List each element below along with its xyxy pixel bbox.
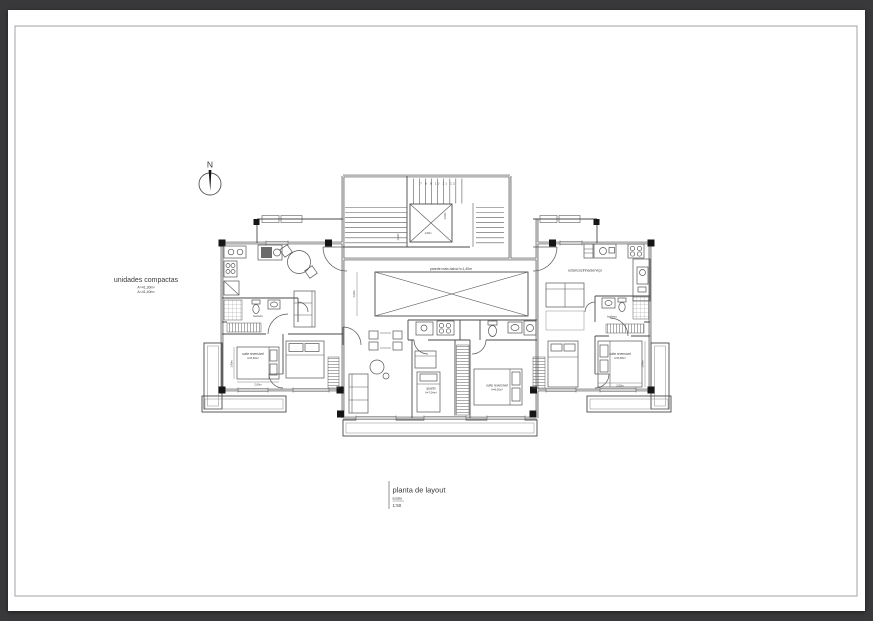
quarto-room: quarto A=7,04m² — [415, 351, 440, 412]
left-dim-h: 1,40m — [230, 360, 234, 367]
wardrobe-hatch — [606, 324, 644, 333]
right-bathroom: banheiro — [602, 297, 649, 319]
sink-icon — [268, 300, 280, 309]
toilet-icon — [488, 321, 497, 325]
right-bath-label: banheiro — [607, 316, 617, 319]
left-kitchen — [224, 245, 282, 295]
side-note-title: unidades compactas — [114, 277, 179, 284]
suite-mid-area: A=8,05m² — [491, 388, 503, 392]
side-note-area1: A=41,30m² — [137, 286, 155, 290]
drawing-canvas: N unidades compactas A=41,30m² A=41,40m² — [0, 0, 873, 621]
left-suite-label: suíte reversível — [242, 352, 264, 356]
right-unit: estar/cozinha/serviço — [533, 244, 650, 388]
void-dim: 1,20m — [352, 290, 356, 297]
stair-core: 7 8 9 10 11 12 1,60m 1,50m 1,00m — [345, 179, 504, 248]
suite-mid-label: suíte reversível — [486, 384, 508, 388]
window — [424, 416, 466, 421]
right-sofa — [546, 283, 584, 330]
center-sofa — [349, 374, 368, 413]
scale-value: 1:50 — [393, 503, 402, 508]
window — [487, 416, 525, 421]
toilet-icon — [618, 298, 626, 302]
right-dim-h: 1,40m — [641, 360, 645, 367]
side-note-area2: A=41,40m² — [137, 290, 155, 294]
stair-step-numbers: 7 8 9 10 11 12 — [420, 182, 456, 186]
window — [560, 241, 582, 246]
toilet-icon — [252, 300, 260, 304]
left-sofa — [294, 291, 315, 327]
center-unit: parede mais baixa h=1,40m — [349, 267, 536, 415]
quarto-area: A=7,04m² — [425, 391, 437, 395]
wardrobe-hatch — [227, 323, 261, 332]
scale-label: escala — [393, 497, 402, 501]
window — [293, 388, 329, 393]
wardrobe-hatch — [533, 357, 545, 388]
sink-icon — [602, 298, 615, 308]
left-suite-area: A=8,36m² — [247, 356, 259, 360]
left-bathroom: banheiro — [224, 300, 280, 320]
low-wall-label: parede mais baixa h=1,40m — [430, 267, 472, 271]
center-balcony — [343, 420, 537, 436]
round-table-icon — [288, 251, 311, 274]
left-dining — [280, 245, 318, 279]
right-kitchen — [584, 244, 650, 301]
shower-icon — [224, 300, 242, 320]
drawing-title: planta de layout — [393, 486, 447, 495]
left-suite: suíte reversível A=8,36m² — [237, 341, 324, 379]
stove-icon — [224, 261, 237, 277]
side-note: unidades compactas A=41,30m² A=41,40m² — [114, 277, 179, 294]
north-arrow-needle — [209, 170, 212, 191]
shaft-height-dim: 1,50m — [444, 213, 447, 220]
title-block: planta de layout escala 1:50 — [389, 481, 446, 509]
wardrobe-hatch — [328, 357, 339, 388]
left-bottom-balcony — [202, 396, 286, 412]
left-unit: banheiro suíte reversível A=8,36m² 1,40m… — [224, 245, 339, 388]
right-bottom-balcony — [587, 396, 671, 412]
exterior-walls — [222, 176, 650, 418]
stool-icon — [383, 373, 389, 379]
window — [238, 388, 268, 393]
center-kitchen — [416, 321, 536, 337]
dining-set — [369, 331, 402, 350]
bed-icon — [598, 341, 642, 387]
left-dim-w: 2,60m — [254, 383, 261, 387]
right-dim-w: 2,60m — [616, 383, 623, 387]
north-arrow: N — [199, 160, 221, 196]
left-bath-label: banheiro — [253, 315, 263, 318]
sink-icon — [594, 244, 616, 258]
sink-icon — [508, 322, 522, 333]
rug — [546, 311, 584, 330]
right-suite-label: suíte reversível — [609, 352, 631, 356]
bed-icon — [548, 341, 578, 387]
estar-label: estar/cozinha/serviço — [568, 269, 602, 273]
sheet-border — [15, 26, 857, 596]
shaft-width-dim: 1,60m — [425, 232, 432, 235]
washer-icon — [524, 321, 536, 335]
wardrobe-hatch — [457, 345, 470, 415]
round-table-icon — [370, 360, 384, 374]
window — [600, 388, 636, 393]
stove-icon — [628, 244, 644, 258]
center-suite: suíte reversível A=8,05m² — [474, 369, 522, 405]
north-label: N — [207, 160, 213, 170]
quarto-label: quarto — [426, 387, 435, 391]
window — [546, 388, 576, 393]
floor-plan-drawing: N unidades compactas A=41,30m² A=41,40m² — [0, 0, 873, 621]
window — [356, 416, 396, 421]
flight-dim: 1,00m — [397, 234, 400, 241]
shower-icon — [633, 297, 649, 319]
right-suite-area: A=8,08m² — [614, 356, 626, 360]
